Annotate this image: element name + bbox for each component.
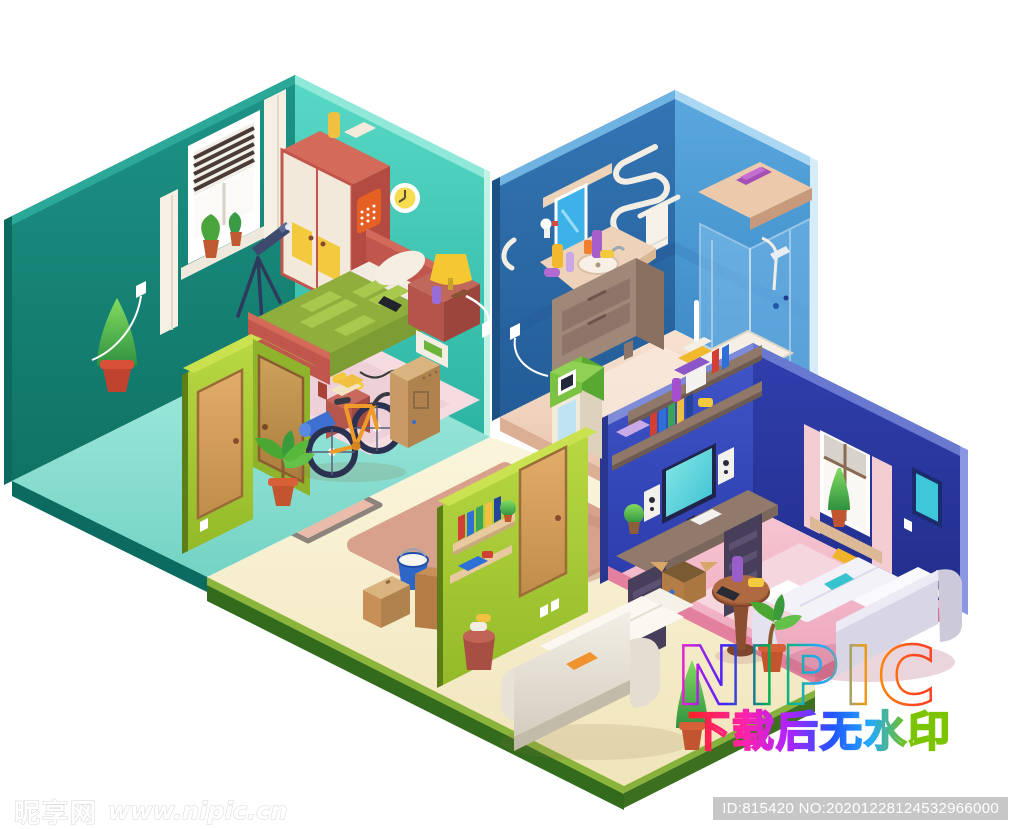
watermark: NIPIC 下载后无水印 [676, 630, 952, 756]
bottle-icon [732, 556, 743, 582]
site-url: www.nipic.cn [108, 797, 287, 825]
apartment-illustration: NIPIC 下载后无水印 [0, 0, 1024, 829]
curtain-left [160, 189, 178, 335]
watermark-slogan: 下载后无水印 [688, 707, 952, 756]
tall-cardboard-box [390, 356, 440, 448]
stock-image-preview: NIPIC 下载后无水印 昵享网 www.nipic.cn ID:815420 … [0, 0, 1024, 829]
door [520, 447, 566, 596]
bottle-icon [552, 244, 563, 268]
desk-plant-icon [624, 504, 644, 524]
candle-icon [432, 286, 441, 304]
image-id-badge: ID:815420 NO:20201228124532966000 [713, 797, 1008, 820]
bottle-icon [328, 112, 340, 138]
soap-icon [544, 268, 560, 277]
footer-site-mark: 昵享网 www.nipic.cn [14, 796, 288, 826]
door [198, 370, 242, 518]
bottle-icon [566, 252, 574, 272]
site-logo: 昵享网 [14, 793, 98, 829]
wall-clock-icon [390, 183, 420, 213]
